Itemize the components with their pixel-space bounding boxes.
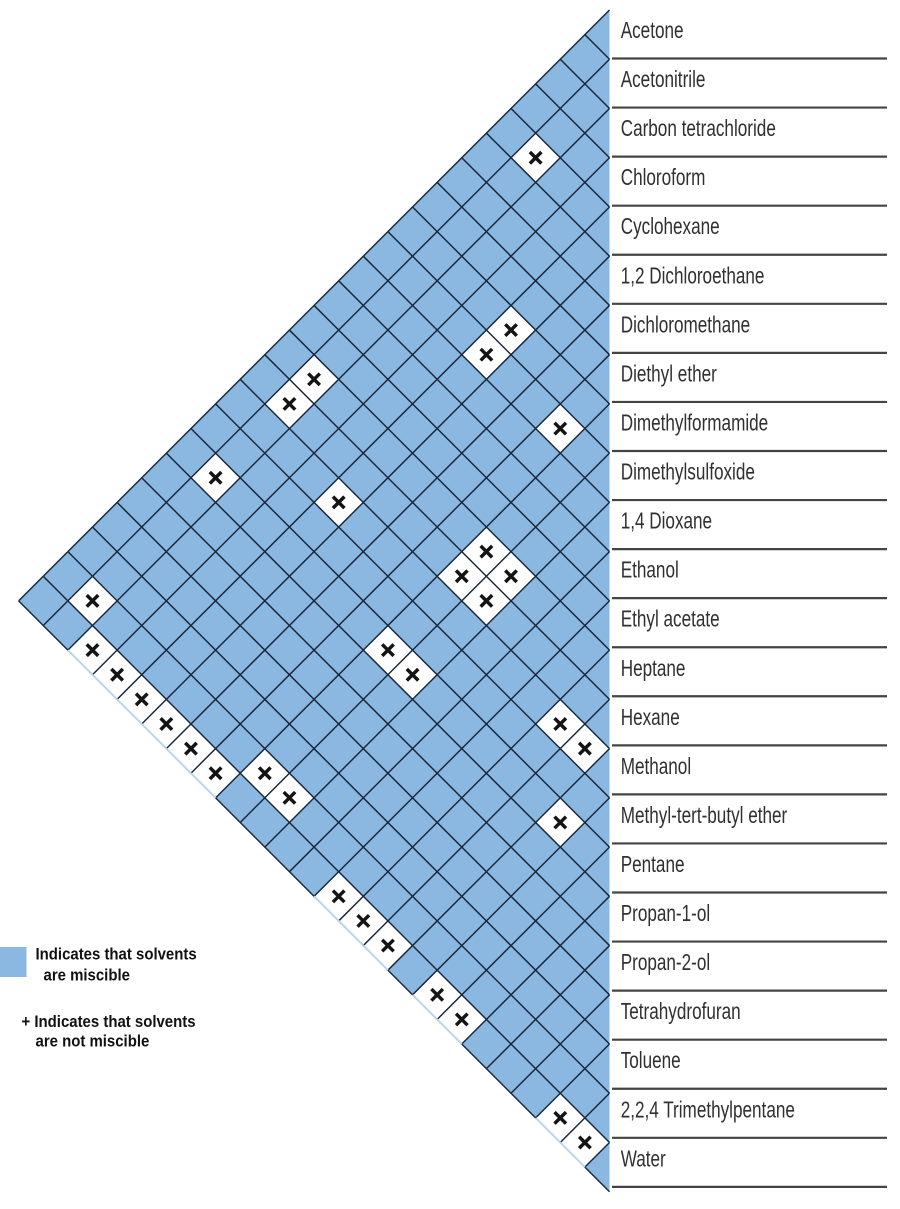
svg-text:Tetrahydrofuran: Tetrahydrofuran xyxy=(621,1000,741,1025)
svg-text:Dichloromethane: Dichloromethane xyxy=(621,313,750,338)
svg-text:Pentane: Pentane xyxy=(621,853,685,878)
svg-text:Toluene: Toluene xyxy=(621,1049,681,1074)
svg-text:Methanol: Methanol xyxy=(621,755,691,780)
svg-text:Ethanol: Ethanol xyxy=(621,558,679,583)
svg-text:Cyclohexane: Cyclohexane xyxy=(621,215,720,240)
svg-text:are miscible: are miscible xyxy=(44,967,131,985)
svg-text:Dimethylformamide: Dimethylformamide xyxy=(621,411,768,436)
svg-text:Diethyl ether: Diethyl ether xyxy=(621,362,717,387)
svg-text:Acetonitrile: Acetonitrile xyxy=(621,68,706,93)
svg-text:Acetone: Acetone xyxy=(621,19,684,44)
svg-text:Dimethylsulfoxide: Dimethylsulfoxide xyxy=(621,460,755,485)
svg-text:Propan-2-ol: Propan-2-ol xyxy=(621,951,710,976)
svg-text:Indicates that solvents: Indicates that solvents xyxy=(36,945,197,963)
svg-text:are not miscible: are not miscible xyxy=(36,1033,150,1051)
svg-text:1,4 Dioxane: 1,4 Dioxane xyxy=(621,509,712,534)
svg-text:Chloroform: Chloroform xyxy=(621,166,706,191)
svg-text:+ Indicates that solvents: + Indicates that solvents xyxy=(22,1013,196,1031)
svg-text:Hexane: Hexane xyxy=(621,706,680,731)
svg-text:Methyl-tert-butyl ether: Methyl-tert-butyl ether xyxy=(621,804,788,829)
svg-text:Ethyl acetate: Ethyl acetate xyxy=(621,607,720,632)
svg-text:Water: Water xyxy=(621,1147,666,1172)
svg-text:Propan-1-ol: Propan-1-ol xyxy=(621,902,710,927)
svg-text:Heptane: Heptane xyxy=(621,656,686,681)
svg-text:1,2 Dichloroethane: 1,2 Dichloroethane xyxy=(621,264,765,289)
svg-text:2,2,4 Trimethylpentane: 2,2,4 Trimethylpentane xyxy=(621,1098,795,1123)
svg-text:Carbon tetrachloride: Carbon tetrachloride xyxy=(621,117,776,142)
